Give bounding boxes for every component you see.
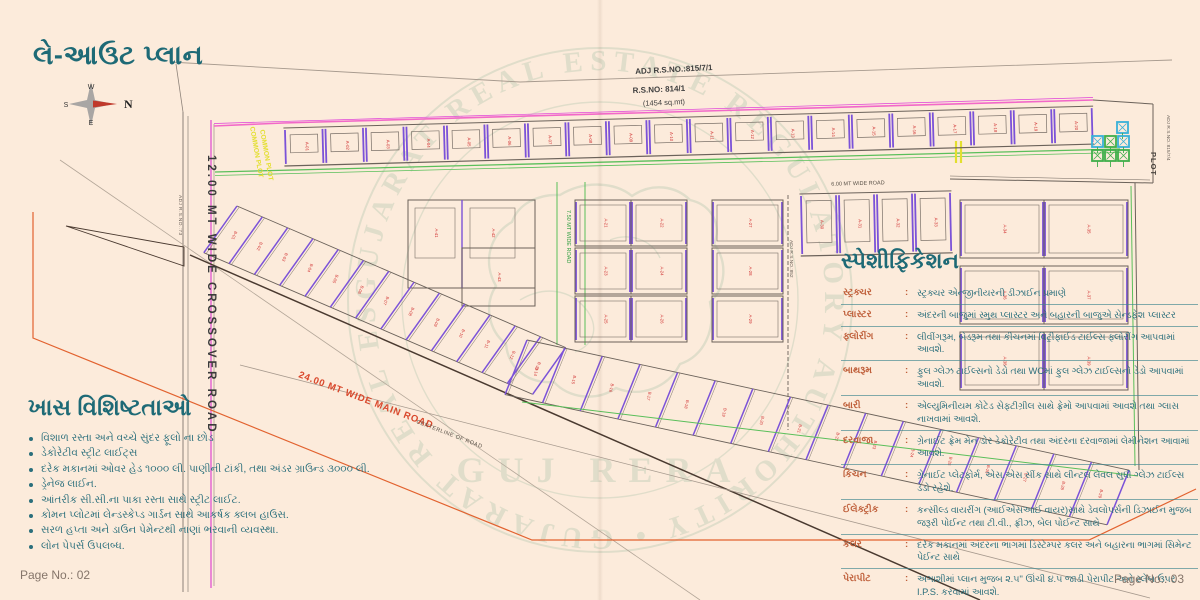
spec-row: બાથરૂમ:ફુલ ગ્લેઝ ટાઈલ્સનો ડેડો તથા WCમાં… bbox=[841, 361, 1198, 396]
plot-wall bbox=[444, 126, 445, 160]
plot-wall-thin bbox=[733, 387, 755, 446]
plot-label: B-05 bbox=[331, 274, 339, 285]
plot-wall bbox=[930, 113, 931, 147]
plot-wall bbox=[874, 194, 875, 252]
plot-inner-outline bbox=[920, 198, 946, 241]
plot-inner-outline bbox=[844, 200, 870, 243]
plot-wall bbox=[325, 129, 326, 163]
plot-label: B-15 bbox=[570, 375, 577, 385]
plot-wall bbox=[285, 130, 286, 164]
compass-rose: W N S E bbox=[64, 82, 133, 127]
plot-label: A-32 bbox=[895, 218, 900, 228]
plot-cell-inner bbox=[1049, 205, 1123, 253]
plot-wall bbox=[254, 223, 287, 279]
spec-row: ફ્લોરીંગ:લીવીંગરૂમ, બેડરૂમ તથા કીચનમાં વ… bbox=[841, 327, 1198, 362]
plot-label: A-23 bbox=[604, 266, 609, 276]
plot-label: B-17 bbox=[646, 391, 653, 401]
plot-cell-inner bbox=[580, 301, 626, 337]
plot-cell bbox=[575, 248, 631, 294]
spec-term: ફ્લોરીંગ bbox=[843, 331, 905, 344]
features-list: વિશાળ રસ્તા અને વચ્ચે સુંદર ફૂલો ના છોડડ… bbox=[28, 431, 373, 554]
label-rsno-814-1: R.S.NO: 814/1 bbox=[632, 84, 685, 95]
gujarat-map-outline bbox=[489, 185, 723, 397]
plot-wall bbox=[687, 119, 688, 153]
plot-inner-outline bbox=[816, 120, 844, 139]
plot-wall bbox=[852, 115, 853, 149]
plot-label: A-28 bbox=[748, 266, 753, 276]
plot-wall bbox=[933, 112, 934, 146]
plot-wall bbox=[849, 115, 850, 149]
plot-label: A-13 bbox=[790, 129, 795, 139]
plot-label: A-09 bbox=[628, 133, 633, 143]
plot-wall bbox=[730, 118, 731, 152]
spec-desc: લીવીંગરૂમ, બેડરૂમ તથા કીચનમાં વિટ્રીફાઈડ… bbox=[917, 331, 1198, 357]
plot-row: A-01A-02A-03A-04A-05A-06A-07A-08A-09A-10… bbox=[283, 106, 1094, 166]
spec-desc: ગ્રેનાઈટ પ્લેટફોર્મ, એસ.એસ સીંક સાથે લીન… bbox=[917, 469, 1198, 495]
plot-inner-outline bbox=[614, 125, 642, 144]
plot-label: A-15 bbox=[871, 126, 876, 136]
plot-label: A-19 bbox=[1033, 122, 1038, 132]
spec-colon: : bbox=[905, 504, 917, 515]
plot-label: B-11 bbox=[483, 339, 491, 349]
feature-item: સરળ હપ્તા અને ડાઉન પેમેન્ટથી નાણાં ભરવાન… bbox=[28, 523, 373, 538]
spec-colon: : bbox=[905, 573, 917, 584]
plot-wall bbox=[727, 118, 728, 152]
spec-term: પ્લાસ્ટર bbox=[843, 309, 905, 322]
plot-inner-outline bbox=[897, 118, 925, 137]
plot-label: B-09 bbox=[432, 317, 440, 328]
plot-wall bbox=[484, 125, 485, 159]
spec-term: કિચન bbox=[843, 469, 905, 482]
plot-inner-outline bbox=[695, 123, 723, 142]
page-title: લે-આઉટ પ્લાન bbox=[33, 40, 203, 72]
plot-label: B-03 bbox=[281, 252, 289, 263]
plot-label: B-18 bbox=[683, 399, 690, 409]
plot-label: B-19 bbox=[721, 407, 728, 417]
plot-label: B-16 bbox=[608, 383, 615, 393]
feature-item: કોમન પ્લોટમાં લેન્ડસ્કેપ્ડ ગાર્ડન સાથે આ… bbox=[28, 508, 373, 523]
spec-desc: અંદરની બાજુમાં સ્મુથ પ્લાસ્ટર અને બહારની… bbox=[917, 309, 1198, 322]
plot-wall bbox=[693, 379, 715, 438]
plot-wall bbox=[609, 121, 610, 155]
plot-cell-inner bbox=[580, 253, 626, 289]
plot-wall bbox=[811, 116, 812, 150]
spec-row: બારી:એલ્યુમિનીયમ કોટેડ સેફ્ટીગ્રીલ સાથે … bbox=[841, 396, 1198, 431]
plot-label: B-02 bbox=[255, 241, 263, 252]
spec-row: દરવાજા:ગ્રેનાઈટ ફ્રેમ મેન ડોર ડેકોરેટીવ … bbox=[841, 431, 1198, 466]
plot-label: A-42 bbox=[491, 228, 496, 238]
plot-inner-outline bbox=[654, 124, 682, 143]
compass-west-label: W bbox=[88, 84, 95, 91]
spec-term: બાથરૂમ bbox=[843, 365, 905, 378]
plot-wall bbox=[649, 120, 650, 154]
plot-inner-outline bbox=[882, 199, 908, 242]
plot-wall bbox=[403, 127, 404, 161]
spec-colon: : bbox=[905, 400, 917, 411]
label-adj-rsno-815-7-4: ADJ R.S.NO.:815/7/4 bbox=[1165, 115, 1171, 161]
label-road-7-5mt: 7.50 MT WIDE ROAD bbox=[565, 210, 571, 263]
page-number-right: Page No.: 03 bbox=[1114, 572, 1184, 586]
plot-label: B-10 bbox=[458, 328, 466, 339]
spec-term: દરવાજા bbox=[843, 435, 905, 448]
plot-cell-inner bbox=[717, 253, 778, 289]
feature-item: વિશાળ રસ્તા અને વચ્ચે સુંદર ફૂલો ના છોડ bbox=[28, 431, 373, 446]
spec-row: પ્લાસ્ટર:અંદરની બાજુમાં સ્મુથ પ્લાસ્ટર અ… bbox=[841, 305, 1198, 327]
plot-label: A-20 bbox=[1074, 121, 1079, 131]
plot-cell-inner bbox=[636, 253, 682, 289]
spec-colon: : bbox=[905, 435, 917, 446]
plot-label: A-33 bbox=[933, 218, 938, 228]
plot-cell-inner bbox=[636, 301, 682, 337]
spec-desc: ફુલ ગ્લેઝ ટાઈલ્સનો ડેડો તથા WCમાં ફુલ ગ્… bbox=[917, 365, 1198, 391]
specification-section: સ્પેશીફિકેશન સ્ટ્રક્ચર:સ્ટ્રક્ચર એન્જીની… bbox=[841, 248, 1198, 600]
compass-south-label: S bbox=[64, 102, 69, 109]
spec-term: પેરાપીટ bbox=[843, 573, 905, 586]
plot-cell bbox=[712, 296, 783, 342]
plot-wall bbox=[646, 120, 647, 154]
plot-cell-inner bbox=[580, 205, 626, 241]
plot-cell-inner bbox=[965, 205, 1039, 253]
plot-label: A-30 bbox=[820, 220, 825, 230]
plot-wall bbox=[305, 245, 338, 301]
label-adj-rsno-852: ADJ R.S.NO.:852 bbox=[788, 240, 794, 278]
spec-desc: સ્ટ્રક્ચર એન્જીનીયરની ડીઝાઈન પ્રમાણે bbox=[917, 287, 1198, 300]
plot-label: A-35 bbox=[1087, 224, 1092, 234]
plot-wall bbox=[606, 121, 607, 155]
plot-label: A-43 bbox=[497, 272, 502, 282]
plot-wall bbox=[229, 212, 262, 268]
plot-wall bbox=[973, 111, 974, 145]
plot-wall bbox=[877, 194, 878, 252]
plot-wall bbox=[406, 288, 439, 344]
road-wedge bbox=[66, 226, 184, 266]
feature-item: લોન પેપર્સ ઉપલબ્ધ. bbox=[28, 539, 373, 554]
spec-term: ઈલેક્ટ્રીક bbox=[843, 504, 905, 517]
plot-wall bbox=[950, 193, 951, 251]
plot-wall bbox=[690, 119, 691, 153]
spec-desc: ગ્રેનાઈટ ફ્રેમ મેન ડોર ડેકોરેટીવ તથા અંદ… bbox=[917, 435, 1198, 461]
label-adj-rsno-73: ADJ R.S.NO.:73 bbox=[177, 195, 183, 236]
spec-term: કલર bbox=[843, 539, 905, 552]
spec-colon: : bbox=[905, 331, 917, 342]
plot-wall bbox=[915, 194, 916, 252]
spec-colon: : bbox=[905, 365, 917, 376]
plot-wall-thin bbox=[696, 379, 718, 438]
label-road-6mt: 6.00 MT WIDE ROAD bbox=[831, 180, 885, 187]
specification-table: સ્ટ્રક્ચર:સ્ટ્રક્ચર એન્જીનીયરની ડીઝાઈન પ… bbox=[841, 283, 1198, 600]
plot-label: B-14 bbox=[533, 367, 540, 377]
plot-label: A-31 bbox=[857, 219, 862, 229]
specification-title: સ્પેશીફિકેશન bbox=[841, 248, 1198, 274]
plot-label: A-26 bbox=[660, 314, 665, 324]
plot-wall bbox=[322, 129, 323, 163]
plot-label: A-06 bbox=[507, 136, 512, 146]
plot-inner-outline bbox=[938, 117, 966, 136]
plot-label: A-08 bbox=[588, 134, 593, 144]
plot-label: B-22 bbox=[834, 432, 841, 442]
spec-colon: : bbox=[905, 539, 917, 550]
plot-label: A-41 bbox=[434, 228, 439, 238]
plot-wall bbox=[525, 123, 526, 157]
plot-inner-outline bbox=[1019, 114, 1047, 133]
spec-colon: : bbox=[905, 309, 917, 320]
plot-label: B-04 bbox=[306, 263, 314, 274]
plot-label: A-10 bbox=[669, 132, 674, 142]
plot-cell bbox=[712, 200, 783, 246]
spec-row: કલર:દરેક મકાનમાં અંદરના ભાગમાં ડિસ્ટેમ્પ… bbox=[841, 535, 1198, 570]
plot-inner-outline bbox=[290, 134, 318, 153]
plot-label: A-22 bbox=[660, 218, 665, 228]
plot-inner-outline bbox=[533, 128, 561, 147]
features-section: ખાસ વિશિષ્ટતાઓ વિશાળ રસ્તા અને વચ્ચે સું… bbox=[28, 394, 373, 554]
label-plot: PLOT bbox=[1149, 152, 1158, 176]
plot-label: A-12 bbox=[750, 130, 755, 140]
plot-wall bbox=[431, 299, 464, 355]
spec-term: બારી bbox=[843, 400, 905, 413]
plot-label: A-01 bbox=[305, 142, 310, 152]
plot-label: A-14 bbox=[831, 128, 836, 138]
spec-row: કિચન:ગ્રેનાઈટ પ્લેટફોર્મ, એસ.એસ સીંક સાથ… bbox=[841, 465, 1198, 500]
plot-label: A-03 bbox=[386, 140, 391, 150]
compass-north-label: N bbox=[124, 97, 133, 111]
label-area-1454: (1454 sq.mt) bbox=[643, 97, 686, 108]
plot-wall bbox=[487, 124, 488, 158]
plot-wall bbox=[505, 338, 527, 397]
plot-cell-inner bbox=[636, 205, 682, 241]
spec-desc: એલ્યુમિનીયમ કોટેડ સેફ્ટીગ્રીલ સાથે ફ્રેમ… bbox=[917, 400, 1198, 426]
plot-wall bbox=[280, 234, 313, 290]
feature-item: આંતરીક સી.સી.ના પાકા રસ્તા સાથે સ્ટ્રીટ … bbox=[28, 493, 373, 508]
plot-wall bbox=[801, 196, 802, 254]
plot-label: A-07 bbox=[547, 135, 552, 145]
plot-label: A-24 bbox=[660, 266, 665, 276]
plot-wall bbox=[768, 117, 769, 151]
plot-inner-outline bbox=[331, 133, 359, 152]
plot-wall bbox=[892, 114, 893, 148]
spec-colon: : bbox=[905, 469, 917, 480]
plot-cell bbox=[631, 296, 687, 342]
green-road-line1 bbox=[215, 149, 1120, 172]
plot-label: A-05 bbox=[466, 137, 471, 147]
plot-cell bbox=[575, 296, 631, 342]
plot-label: A-17 bbox=[952, 124, 957, 134]
spec-row: ઈલેક્ટ્રીક:કન્સીલ્ડ વાયરીંગ (આઈએસઆઈ વાયર… bbox=[841, 500, 1198, 535]
label-crossover-road: 12.00 MT WIDE CROSSOVER ROAD bbox=[205, 155, 217, 435]
plot-inner-outline bbox=[371, 132, 399, 151]
plot-wall bbox=[1014, 110, 1015, 144]
plot-wall bbox=[528, 123, 529, 157]
plot-inner-outline bbox=[978, 115, 1006, 134]
plot-label: B-08 bbox=[407, 307, 415, 318]
plot-wall bbox=[808, 116, 809, 150]
plot-label: A-34 bbox=[1003, 224, 1008, 234]
plot-label: A-02 bbox=[345, 141, 350, 151]
plot-wall bbox=[889, 114, 890, 148]
plot-wall bbox=[731, 387, 753, 446]
plot-label: A-18 bbox=[993, 123, 998, 133]
plot-wall bbox=[406, 127, 407, 161]
plot-wall bbox=[363, 128, 364, 162]
plot-wall bbox=[1011, 110, 1012, 144]
plot-label: A-21 bbox=[604, 218, 609, 228]
plot-inner-outline bbox=[857, 119, 885, 138]
plot-label: A-11 bbox=[709, 131, 714, 140]
plot-label: A-16 bbox=[912, 125, 917, 135]
plot-label: B-01 bbox=[230, 230, 238, 241]
plot-wall bbox=[839, 195, 840, 253]
plot-label: B-07 bbox=[382, 296, 390, 307]
features-title: ખાસ વિશિષ્ટતાઓ bbox=[28, 394, 373, 421]
plot-cell-inner bbox=[717, 205, 778, 241]
plot-wall bbox=[1054, 109, 1055, 143]
plot-wall bbox=[482, 321, 515, 377]
feature-item: દરેક મકાનમાં ઓવર હેડ ૧૦૦૦ લી. પાણીની ટાં… bbox=[28, 462, 373, 477]
plot-label: A-25 bbox=[604, 314, 609, 324]
plot-label: A-27 bbox=[748, 218, 753, 228]
brochure-spread: GUJARAT REAL ESTATE REGULATORY AUTHORITY… bbox=[0, 0, 1200, 600]
plot-wall bbox=[1051, 109, 1052, 143]
compass-east-label: E bbox=[89, 120, 94, 127]
plot-wall bbox=[568, 122, 569, 156]
spec-desc: દરેક મકાનમાં અંદરના ભાગમાં ડિસ્ટેમ્પર કલ… bbox=[917, 539, 1198, 565]
plot-wall-thin bbox=[545, 347, 567, 406]
spec-term: સ્ટ્રક્ચર bbox=[843, 287, 905, 300]
plot-wall bbox=[970, 111, 971, 145]
page-fold-line bbox=[597, 0, 603, 600]
spec-colon: : bbox=[905, 287, 917, 298]
plot-cell-inner bbox=[717, 301, 778, 337]
compass-north-arrow bbox=[93, 101, 117, 108]
plot-wall bbox=[381, 278, 414, 334]
plot-inner-outline bbox=[1059, 113, 1087, 132]
plot-label: A-29 bbox=[748, 314, 753, 324]
spec-desc: કન્સીલ્ડ વાયરીંગ (આઈએસઆઈ વાયર)સાથે ડેવલો… bbox=[917, 504, 1198, 530]
plot-wall bbox=[836, 195, 837, 253]
right-boundary-top bbox=[1093, 100, 1153, 104]
plot-wall bbox=[912, 194, 913, 252]
plot-wall bbox=[771, 117, 772, 151]
plot-wall bbox=[457, 310, 490, 366]
plot-wall bbox=[447, 126, 448, 160]
plot-wall bbox=[565, 122, 566, 156]
feature-item: ડેકોરેટીવ સ્ટ્રીટ લાઈટ્સ bbox=[28, 446, 373, 461]
plot-wall bbox=[366, 128, 367, 162]
feature-item: ડ્રેનેજ લાઈન. bbox=[28, 477, 373, 492]
page-number-left: Page No.: 02 bbox=[20, 568, 90, 582]
spec-row: સ્ટ્રક્ચર:સ્ટ્રક્ચર એન્જીનીયરની ડીઝાઈન પ… bbox=[841, 283, 1198, 305]
plot-label: A-04 bbox=[426, 138, 431, 148]
plot-cell bbox=[575, 200, 631, 246]
